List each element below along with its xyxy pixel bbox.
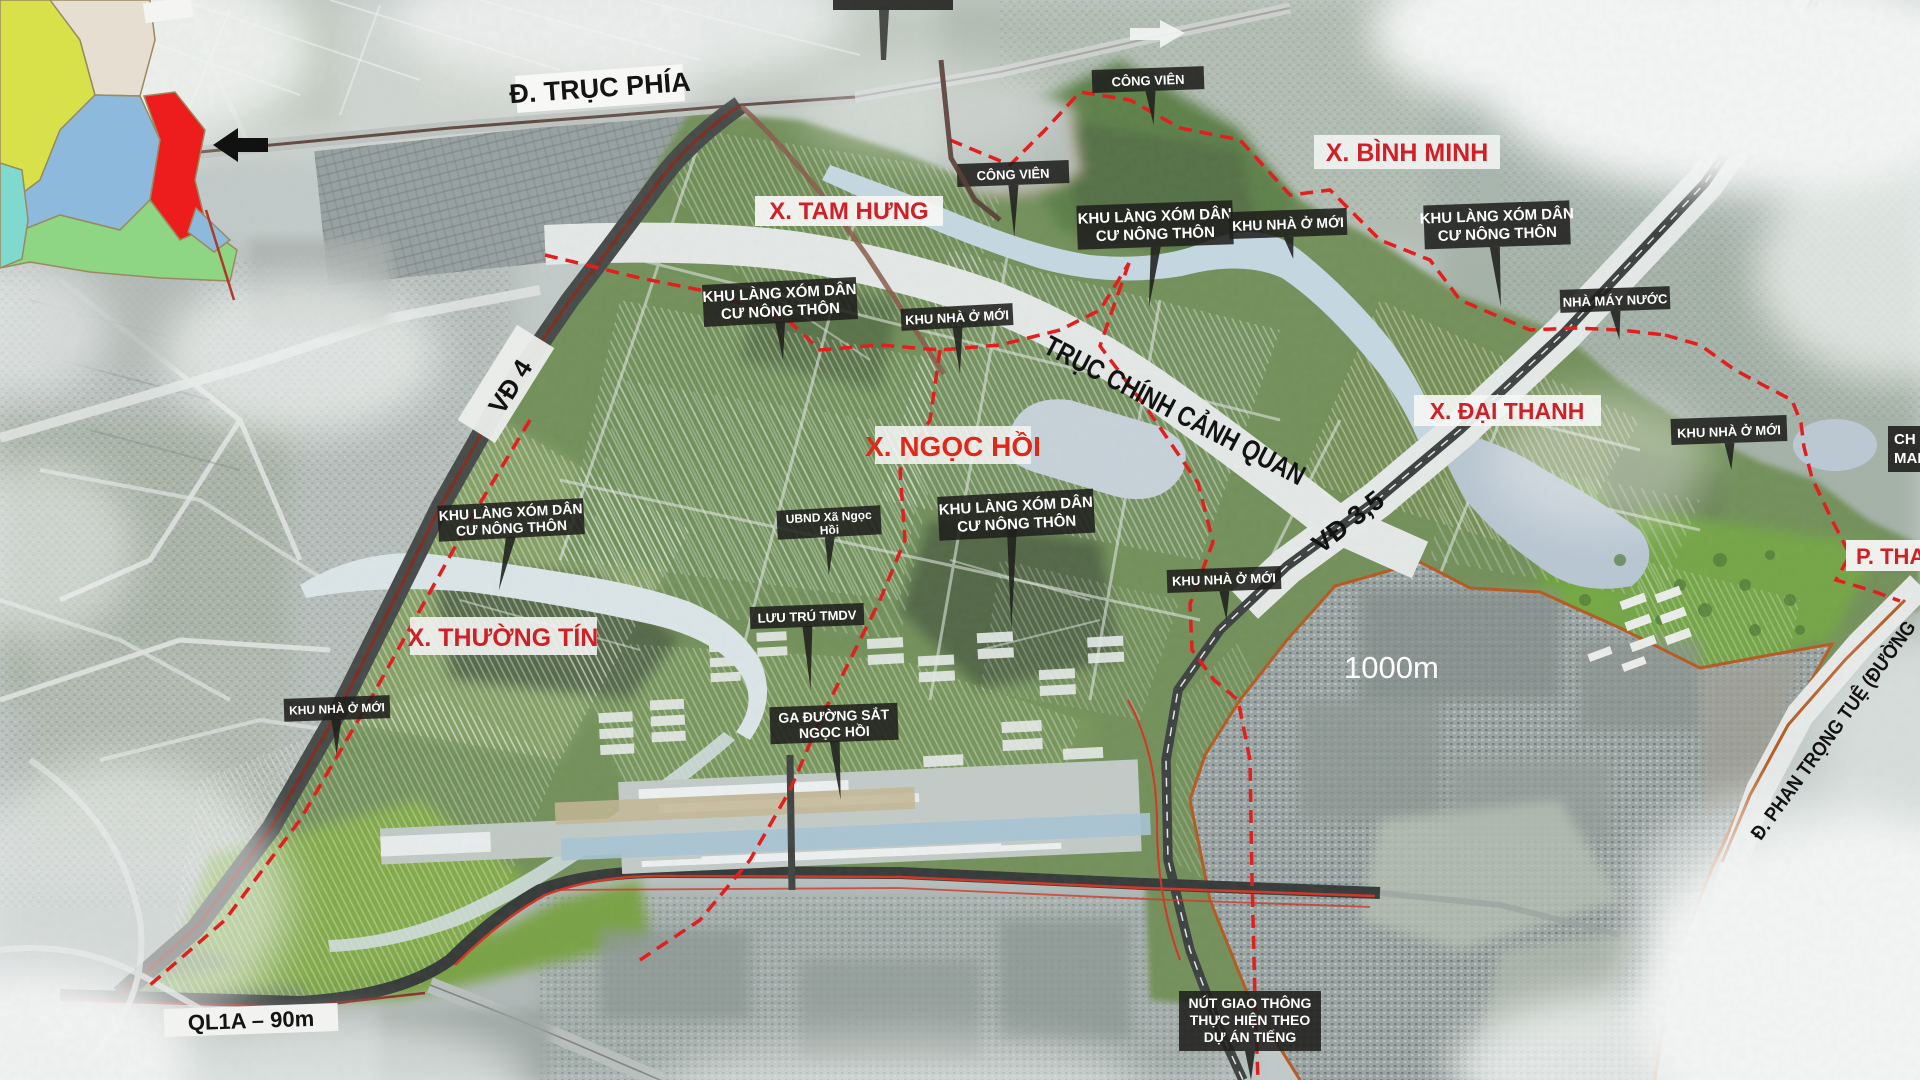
svg-text:QL1A – 90m: QL1A – 90m [187, 1006, 314, 1035]
svg-text:NÚT GIAO THÔNG: NÚT GIAO THÔNG [1189, 994, 1312, 1011]
svg-text:MAI: MAI [1894, 450, 1920, 467]
svg-text:CH: CH [1894, 431, 1916, 448]
svg-text:DỰ ÁN TIẾNG: DỰ ÁN TIẾNG [1204, 1029, 1297, 1045]
svg-text:X. BÌNH MINH: X. BÌNH MINH [1326, 138, 1489, 167]
svg-text:CÔNG VIÊN: CÔNG VIÊN [1111, 72, 1184, 90]
svg-text:X. TAM HƯNG: X. TAM HƯNG [769, 198, 928, 225]
svg-text:X. ĐẠI THANH: X. ĐẠI THANH [1430, 398, 1585, 424]
svg-text:X. THƯỜNG TÍN: X. THƯỜNG TÍN [408, 622, 599, 652]
svg-text:Hồi: Hồi [819, 522, 839, 537]
svg-text:1000m: 1000m [1344, 650, 1439, 685]
svg-text:THỰC HIỆN THEO: THỰC HIỆN THEO [1190, 1011, 1311, 1028]
svg-text:NGỌC HỒI: NGỌC HỒI [799, 722, 870, 741]
svg-text:X. NGỌC HỒI: X. NGỌC HỒI [865, 431, 1041, 462]
svg-text:CÔNG VIÊN: CÔNG VIÊN [976, 166, 1049, 184]
svg-text:P. THA: P. THA [1856, 544, 1920, 569]
